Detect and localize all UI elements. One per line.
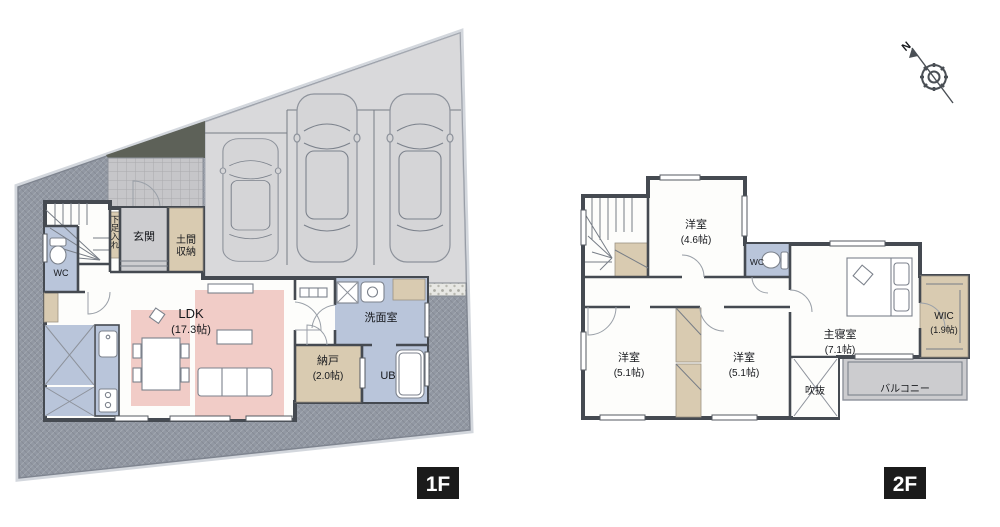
closet-1f: [44, 293, 58, 322]
label-nando: 納戸: [317, 354, 339, 367]
floor-tag-1f: 1F: [417, 467, 459, 499]
label-shusin: 主寝室: [824, 327, 857, 341]
label-doma-2: 収納: [176, 245, 196, 258]
label-yoshitsu51r-area: (5.1帖): [729, 366, 760, 379]
label-wc-1f: WC: [54, 268, 69, 278]
car-icon-3: [387, 94, 453, 262]
stove-icon: [99, 389, 117, 412]
label-wic: WIC: [934, 311, 953, 322]
floor-tag-1f-text: 1F: [426, 473, 451, 496]
label-ldk: LDK: [178, 306, 204, 321]
floor-tag-2f: 2F: [884, 467, 926, 499]
label-nando-area: (2.0帖): [313, 369, 344, 382]
entrance-porch: [108, 158, 203, 208]
senmen-cabinet: [393, 279, 425, 300]
bed-icon: [847, 258, 912, 316]
ub-door: [360, 358, 365, 388]
bathtub-icon: [396, 350, 424, 398]
floor-tag-2f-text: 2F: [893, 473, 918, 496]
tv-board-icon: [208, 284, 253, 293]
label-balcony: バルコニー: [880, 383, 930, 395]
label-ldk-area: (17.3帖): [171, 323, 211, 336]
label-wc-2f: WC: [750, 257, 764, 267]
label-yoshitsu51r: 洋室: [733, 350, 755, 364]
label-ub: UB: [380, 370, 395, 382]
toilet-icon-1f: [50, 238, 66, 264]
hall-storage-1f: [300, 288, 327, 297]
plant-bed: [106, 121, 205, 158]
label-yoshitsu46: 洋室: [685, 217, 707, 231]
label-yoshitsu51l: 洋室: [618, 350, 640, 364]
label-genkan: 玄関: [133, 229, 155, 243]
kitchen-sink-icon: [99, 331, 117, 357]
washbasin-icon: [337, 282, 358, 303]
toilet-icon-2f: [762, 252, 788, 269]
car-icon-2: [294, 94, 360, 262]
washing-machine-icon: [361, 282, 384, 302]
stairs-closet-2f: [615, 243, 648, 277]
closet-51r: [676, 364, 701, 417]
compass-icon: N: [900, 40, 953, 103]
label-senmen: 洗面室: [365, 310, 398, 324]
floor-plan-image: WC 玄関 下足入れ 土間 収納 LDK (17.3帖) 納戸 (2.0帖) 洗…: [0, 0, 1000, 527]
label-shusin-area: (7.1帖): [825, 343, 856, 356]
closet-51l: [676, 308, 701, 362]
label-doma-1: 土間: [176, 233, 196, 246]
label-fukinuke: 吹抜: [805, 384, 825, 397]
floor-plan-canvas: WC 玄関 下足入れ 土間 収納 LDK (17.3帖) 納戸 (2.0帖) 洗…: [0, 0, 1000, 527]
label-yoshitsu46-area: (4.6帖): [681, 233, 712, 246]
car-icon-1: [220, 139, 281, 262]
label-yoshitsu51l-area: (5.1帖): [614, 366, 645, 379]
ldk-living-zone: [195, 290, 284, 419]
label-shoe-storage: 下足入れ: [110, 215, 120, 249]
label-wic-area: (1.9帖): [930, 324, 958, 335]
